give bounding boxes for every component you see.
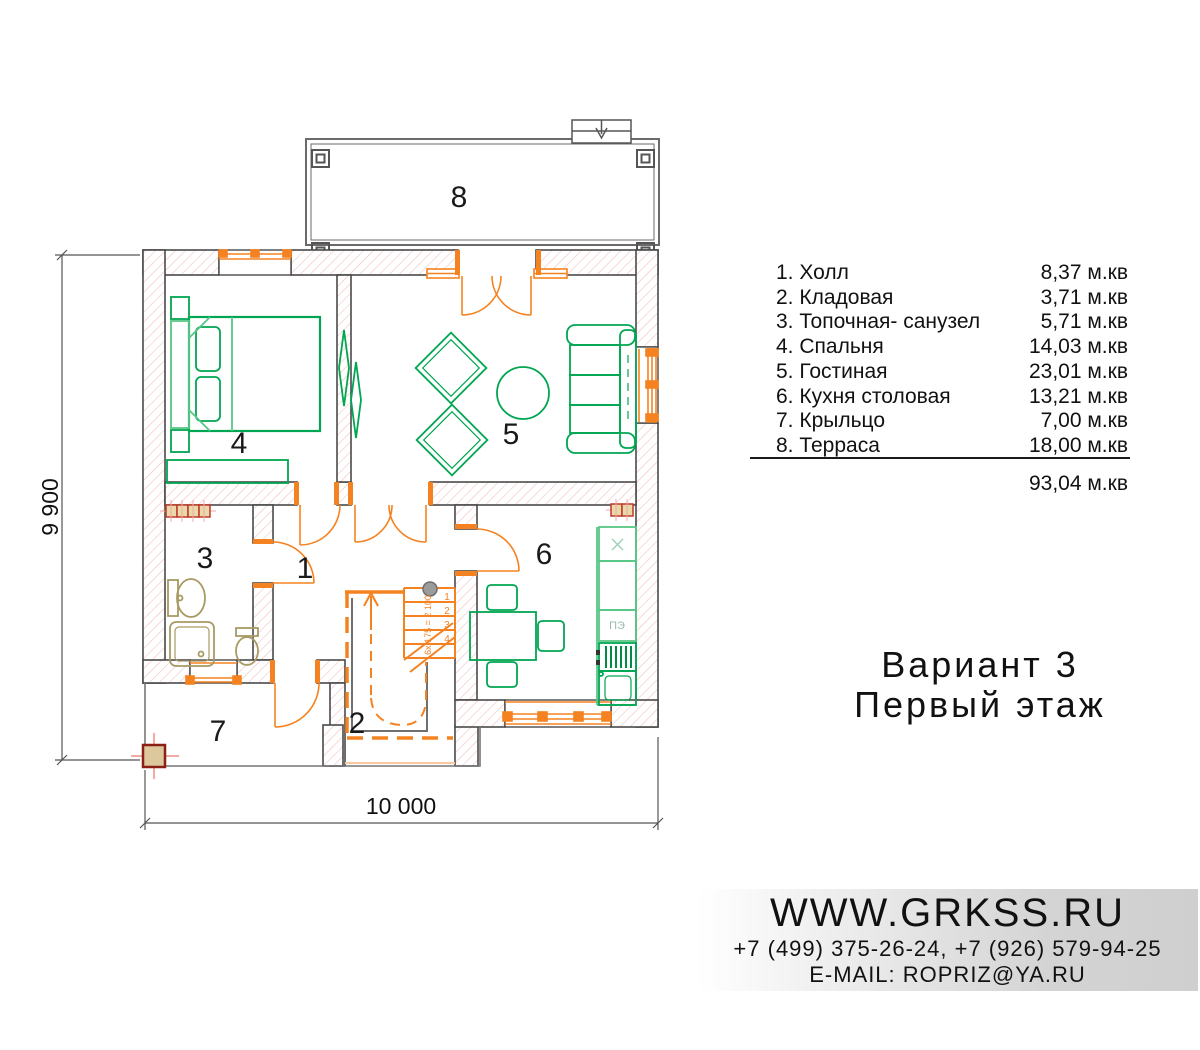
- room-area: 14,03 м.кв: [1029, 335, 1128, 360]
- room-area: 23,01 м.кв: [1029, 360, 1128, 385]
- room-number-4: 4: [231, 427, 248, 460]
- phone-numbers: +7 (499) 375-26-24, +7 (926) 579-94-25: [733, 936, 1161, 962]
- website: WWW.GRKSS.RU: [770, 892, 1125, 934]
- room-area: 7,00 м.кв: [1041, 409, 1128, 434]
- room-number-7: 7: [210, 715, 227, 748]
- kitchen-table: [470, 612, 536, 660]
- kitchen-chair: [538, 621, 564, 651]
- room-list-row: 1. Холл 8,37 м.кв: [776, 261, 1128, 286]
- room-area: 18,00 м.кв: [1029, 434, 1128, 459]
- room-list-row: 7. Крыльцо 7,00 м.кв: [776, 409, 1128, 434]
- plan-title: Вариант 3 Первый этаж: [780, 645, 1180, 725]
- room-list-row: 5. Гостиная 23,01 м.кв: [776, 360, 1128, 385]
- kitchen-chair: [487, 662, 517, 687]
- room-list-row: 2. Кладовая 3,71 м.кв: [776, 286, 1128, 311]
- room-number-3: 3: [197, 542, 214, 575]
- room-number-1: 1: [297, 552, 314, 585]
- dimension-width-label: 10 000: [366, 793, 436, 819]
- room-list-divider: [750, 457, 1130, 459]
- stair-step-number: 1: [444, 592, 450, 603]
- living-furniture: [416, 325, 636, 475]
- room-list-row: 4. Спальня 14,03 м.кв: [776, 335, 1128, 360]
- sofa: [567, 325, 636, 453]
- terrace-steps-icon: [572, 120, 631, 143]
- room-area: 3,71 м.кв: [1041, 286, 1128, 311]
- armchair: [416, 333, 487, 404]
- stair-step-number: 4: [444, 634, 450, 645]
- nightstand: [171, 430, 189, 452]
- room-name: 1. Холл: [776, 261, 849, 286]
- total-area: 93,04 м.кв: [776, 472, 1128, 496]
- room-name: 2. Кладовая: [776, 286, 893, 311]
- room-list-row: 3. Топочная- санузел 5,71 м.кв: [776, 310, 1128, 335]
- porch-post: [131, 733, 179, 779]
- plan-title-line2: Первый этаж: [780, 685, 1180, 725]
- dimension-height-label: 9 900: [37, 478, 63, 536]
- room-name: 7. Крыльцо: [776, 409, 885, 434]
- room-name: 8. Терраса: [776, 434, 880, 459]
- round-table: [497, 367, 549, 419]
- room-list-row: 6. Кухня столовая 13,21 м.кв: [776, 385, 1128, 410]
- room-area: 13,21 м.кв: [1029, 385, 1128, 410]
- terrace: [306, 120, 659, 260]
- footer-band: WWW.GRKSS.RU +7 (499) 375-26-24, +7 (926…: [697, 889, 1198, 991]
- room-name: 3. Топочная- санузел: [776, 310, 980, 335]
- kitchen-furniture: [470, 527, 636, 705]
- plant-icon: [351, 362, 361, 438]
- page: 1 2 3 4 6x 175 = 2 100: [0, 0, 1200, 1050]
- porch-outline: [145, 683, 480, 766]
- bath-fixtures: [168, 579, 258, 666]
- room-name: 6. Кухня столовая: [776, 385, 951, 410]
- stair-step-number: 2: [444, 606, 450, 617]
- stair-step-number: 3: [444, 620, 450, 631]
- walls: [143, 250, 658, 766]
- room-name: 4. Спальня: [776, 335, 884, 360]
- armchair: [417, 405, 488, 476]
- room-number-8: 8: [451, 181, 468, 214]
- room-number-2: 2: [349, 707, 366, 740]
- sink: [168, 579, 205, 617]
- room-list: 1. Холл 8,37 м.кв 2. Кладовая 3,71 м.кв …: [776, 261, 1128, 459]
- bedroom-furniture: [167, 297, 361, 483]
- plan-title-line1: Вариант 3: [780, 645, 1180, 685]
- room-area: 5,71 м.кв: [1041, 310, 1128, 335]
- dresser: [167, 460, 288, 483]
- grill-hatch: [606, 646, 631, 668]
- stove-label: ПЭ: [609, 620, 625, 632]
- kitchen-chair: [487, 585, 517, 610]
- room-list-row: 8. Терраса 18,00 м.кв: [776, 434, 1128, 459]
- room-area: 8,37 м.кв: [1041, 261, 1128, 286]
- room-name: 5. Гостиная: [776, 360, 888, 385]
- room-number-6: 6: [536, 538, 553, 571]
- newel-post-icon: [423, 582, 437, 596]
- email: E-MAIL: ROPRIZ@YA.RU: [809, 962, 1086, 988]
- room-number-5: 5: [503, 418, 520, 451]
- bed: [189, 317, 320, 431]
- stair-note: 6x 175 = 2 100: [423, 595, 433, 655]
- nightstand: [171, 297, 189, 319]
